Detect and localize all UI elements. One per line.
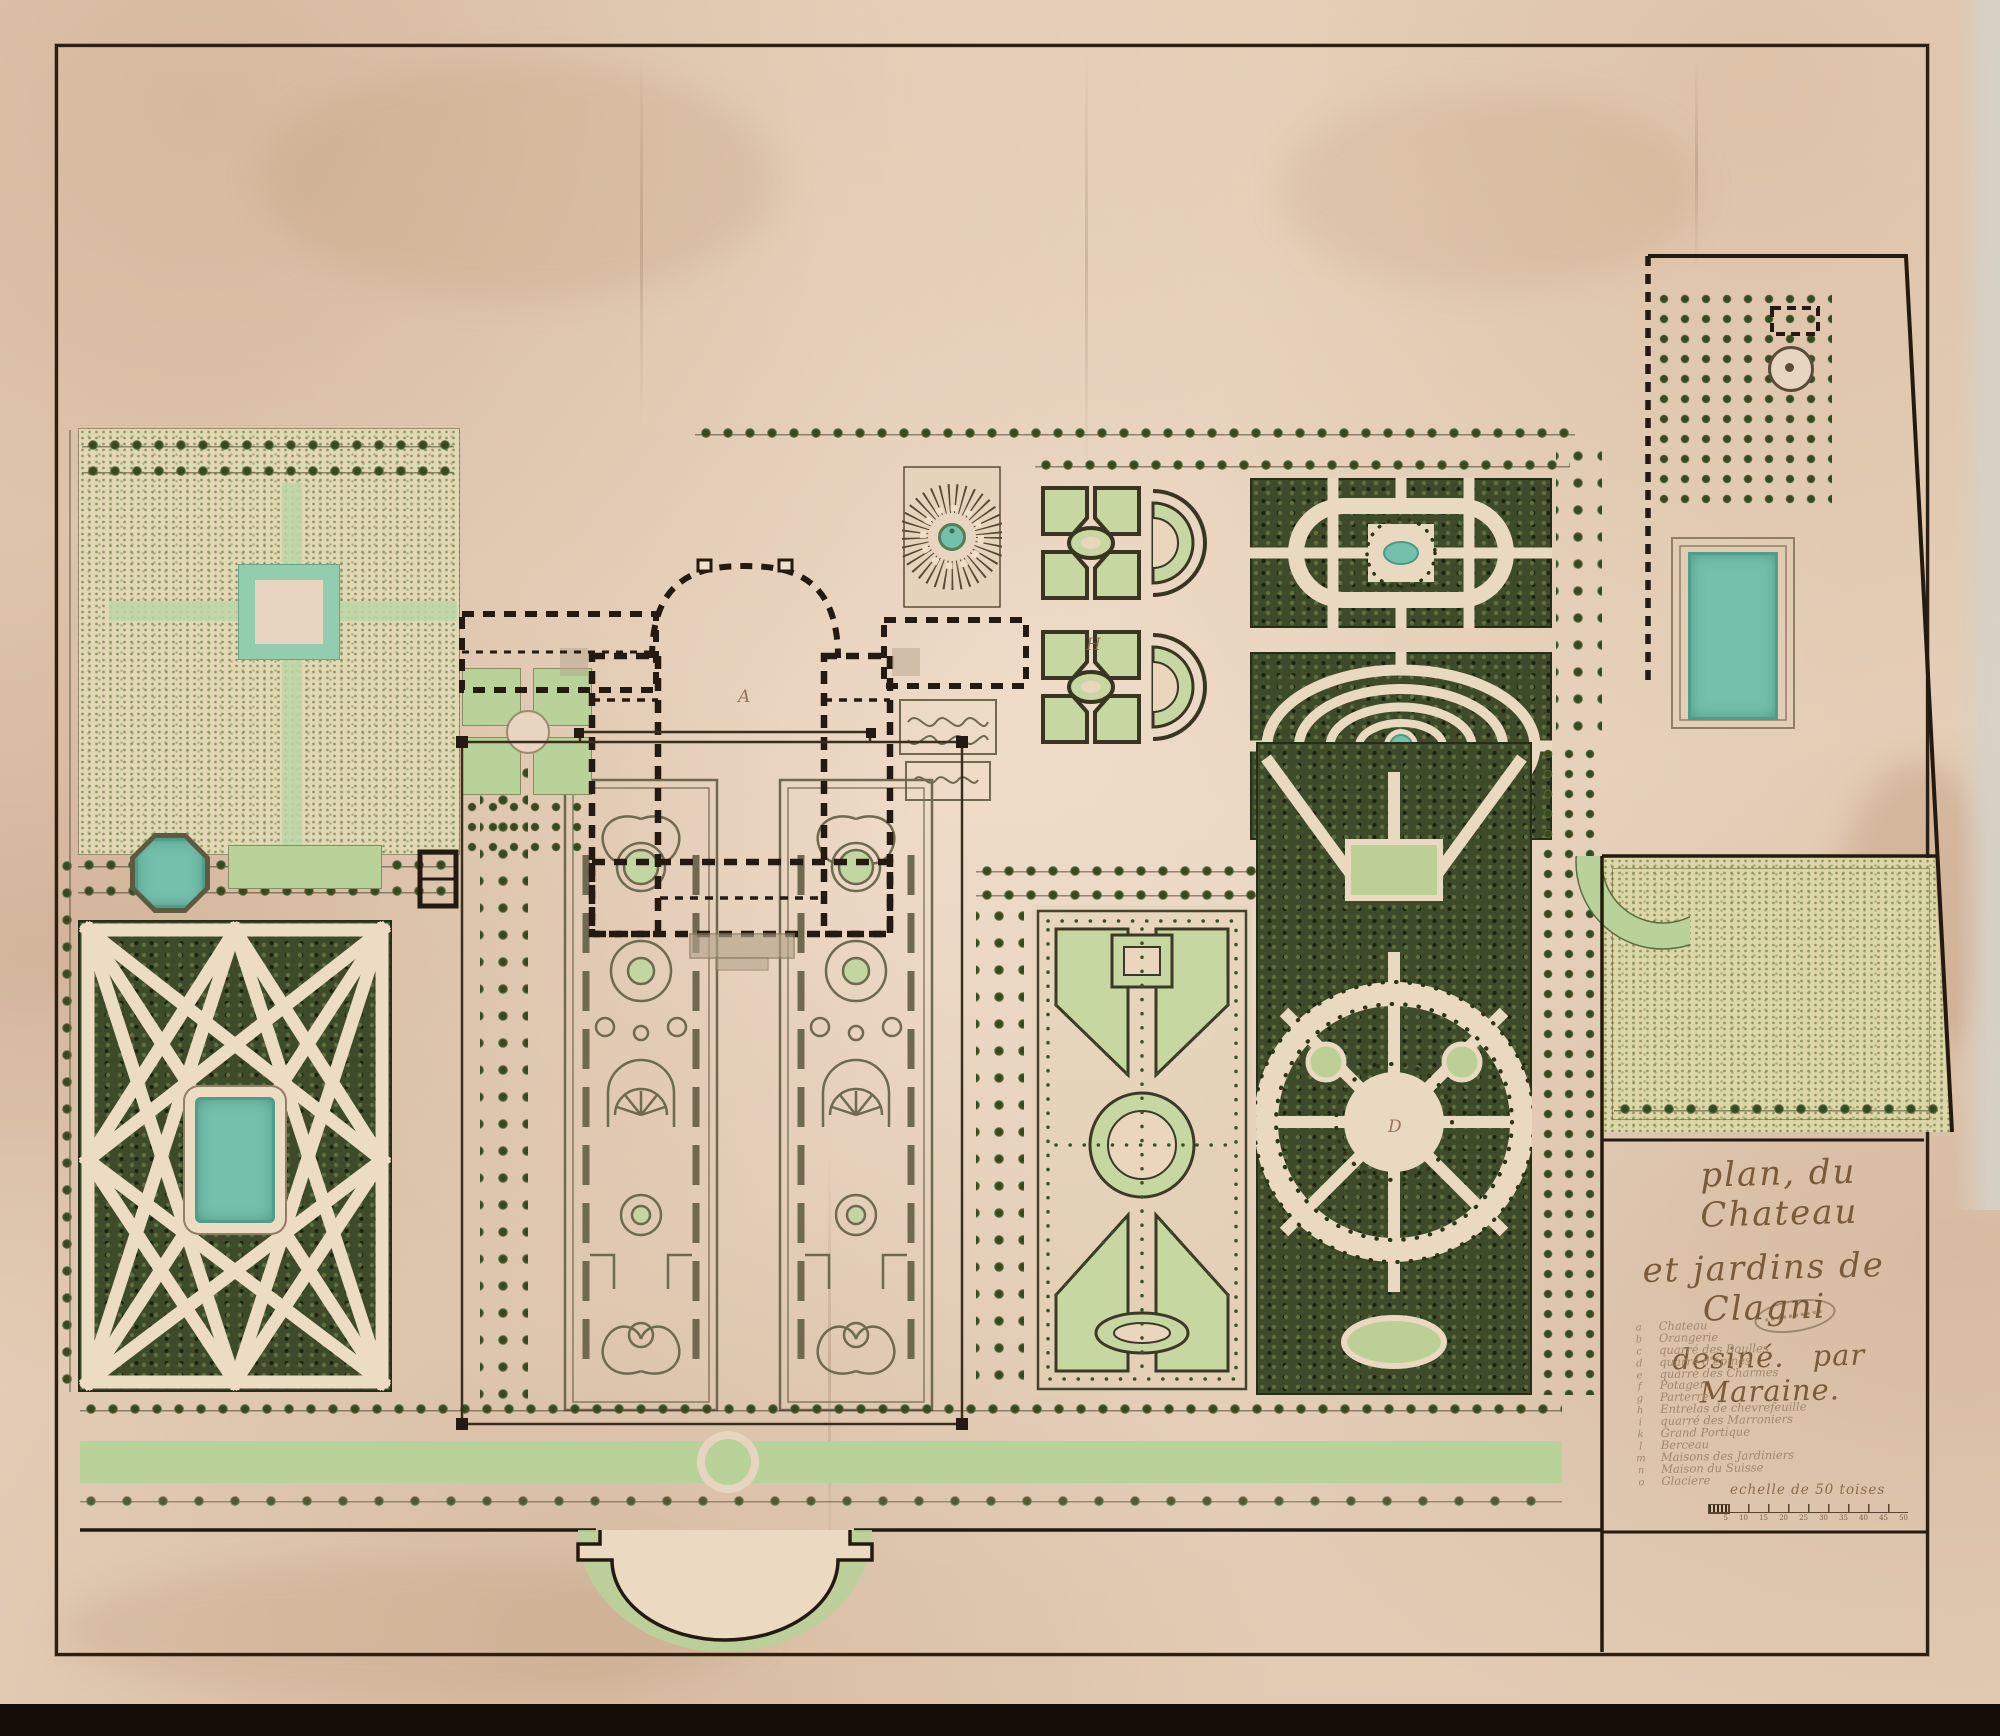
orchard-grid [1654,290,1832,512]
star-basin-surround [185,1087,285,1233]
star-basin [195,1097,275,1223]
round-fountain [1768,346,1814,392]
legend-key: d [1631,1358,1647,1369]
potager-basin [239,565,339,659]
tree-grid [1538,745,1602,1395]
oval-bosquet [1250,478,1552,628]
tree-column [480,762,528,1410]
scale-tick: 5 [1708,1514,1728,1522]
legend-label: Glaciere [1661,1473,1710,1488]
circle-bosquet-paths [1256,742,1532,1395]
terrace-hemicycle [1570,856,1690,966]
broderie-panel-west [560,775,722,1415]
title-line-1: plan, du Chateau [1627,1150,1931,1237]
tree-row [1614,1096,1938,1120]
scale-tick: 40 [1848,1514,1868,1522]
legend-key: k [1632,1429,1648,1440]
legend-key: l [1633,1441,1649,1452]
oval-bosquet-paths [1250,478,1552,628]
legend-key: i [1632,1417,1648,1428]
quartered-parterre-upper [1035,478,1220,608]
legend-key: g [1632,1394,1648,1405]
tree-row [80,1396,1562,1420]
interlace-garden [1032,905,1252,1395]
sunburst-parterre [902,465,1002,610]
potager-garden [78,428,460,855]
rond-point-lawn [705,1439,751,1485]
scale-label: echelle de 50 toises [1730,1482,1885,1498]
lawn-panel [228,845,382,889]
scale-bar [1708,1504,1908,1513]
star-bosquet [78,920,392,1392]
legend-key: h [1632,1405,1648,1416]
octagon-basin-rim [130,833,210,913]
tree-column [56,855,80,1395]
legend-key: c [1631,1346,1647,1357]
photo-backing-edge [1956,0,2000,1210]
tree-row [1035,452,1570,476]
legend-key: e [1631,1370,1647,1381]
title-cartouche: plan, du Chateau et jardins de Clagni de… [1602,1140,1932,1532]
quartered-parterre-lower [1035,622,1220,752]
circle-bosquet [1256,742,1532,1395]
tree-grid [462,798,594,852]
photo-dark-edge [0,1704,2000,1736]
scale-tick: 50 [1888,1514,1908,1522]
legend-key: b [1631,1334,1647,1345]
garden-path [282,483,302,851]
legend-key: a [1631,1322,1647,1333]
scale-tick: 35 [1828,1514,1848,1522]
tree-column [976,905,1024,1395]
basin-island [255,580,323,644]
quartered-square-garden [462,668,592,795]
center-circle-path [506,710,550,754]
scale-tick: 10 [1728,1514,1748,1522]
octagon-basin [135,838,205,908]
tree-row [82,432,454,456]
legend-key: f [1632,1382,1648,1393]
legend-list: a Chateau b Orangerie c quarré des Boull… [1631,1316,1808,1485]
tree-row [695,420,1575,444]
scale-tick: 25 [1788,1514,1808,1522]
reservoir-pool [1688,552,1778,720]
scale-tick-numbers: 5101520253035404550 [1708,1514,1918,1522]
tree-row [80,1488,1562,1510]
scale-tick: 45 [1868,1514,1888,1522]
scale-tick: 30 [1808,1514,1828,1522]
map-photograph: A H D plan, du Chateau et jardins de Cla… [0,0,2000,1736]
tree-row [82,458,454,482]
scale-tick: 15 [1748,1514,1768,1522]
tree-column [1556,445,1602,745]
broderie-panel-east [775,775,937,1415]
scale-tick: 20 [1768,1514,1788,1522]
legend-key: o [1633,1477,1649,1488]
legend-key: m [1633,1453,1649,1464]
rond-point [697,1431,759,1493]
tapis-vert [80,1441,1562,1483]
fountain-jet [1785,363,1794,372]
legend-key: n [1633,1465,1649,1476]
